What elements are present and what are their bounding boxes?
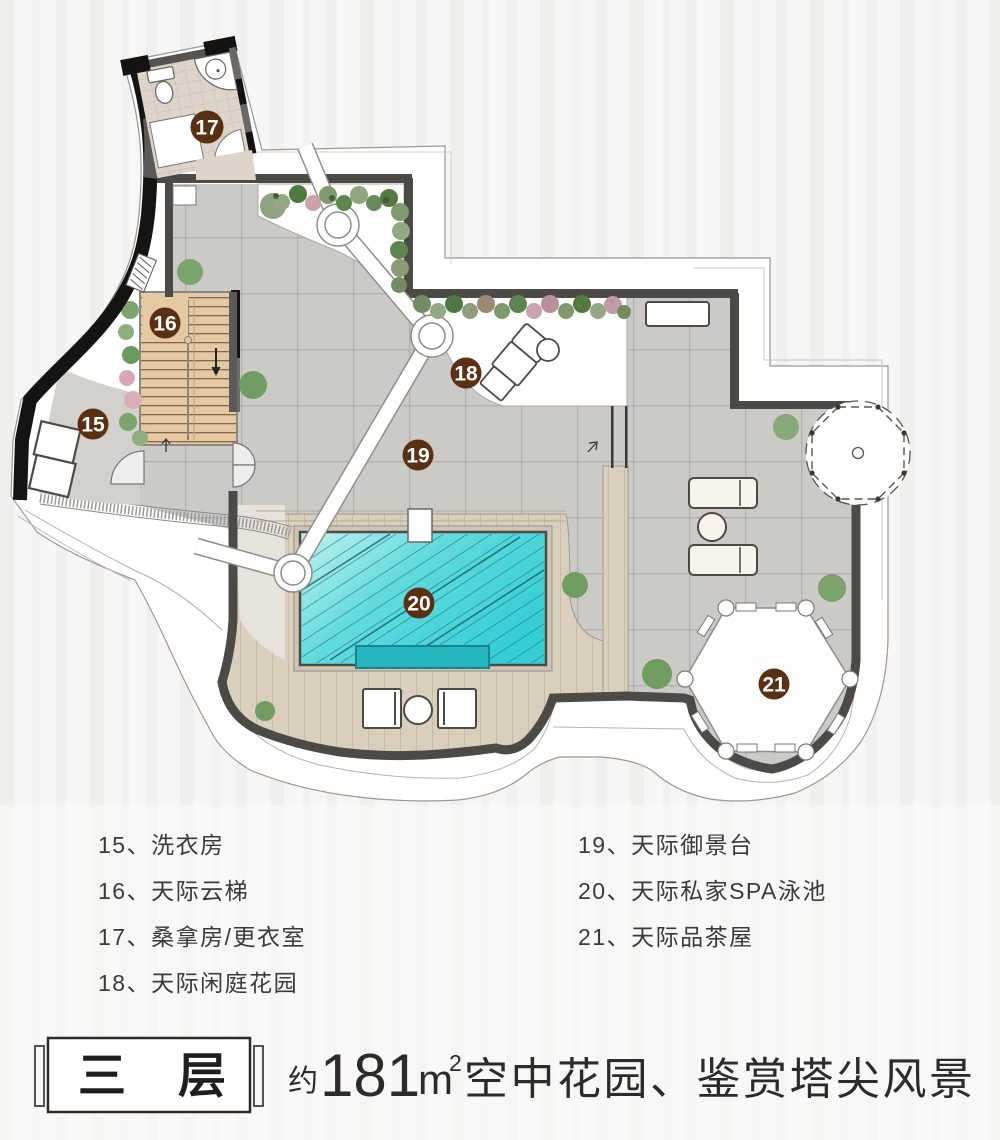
svg-text:19、天际御景台: 19、天际御景台 [578, 832, 754, 858]
svg-text:21: 21 [762, 674, 786, 697]
svg-text:20、天际私家SPA泳池: 20、天际私家SPA泳池 [578, 878, 827, 904]
svg-text:16: 16 [153, 313, 176, 336]
svg-text:m: m [418, 1056, 453, 1103]
svg-text:约: 约 [288, 1065, 318, 1098]
svg-text:15: 15 [81, 414, 105, 437]
svg-text:三: 三 [78, 1050, 126, 1103]
svg-text:17: 17 [195, 117, 218, 140]
svg-text:18: 18 [454, 363, 478, 386]
svg-text:16、天际云梯: 16、天际云梯 [98, 878, 249, 904]
svg-text:18、天际闲庭花园: 18、天际闲庭花园 [98, 970, 298, 996]
svg-text:181: 181 [320, 1042, 420, 1109]
svg-text:20: 20 [407, 593, 430, 616]
svg-text:空中花园、鉴赏塔尖风景: 空中花园、鉴赏塔尖风景 [464, 1055, 976, 1104]
svg-text:19: 19 [406, 445, 429, 468]
svg-text:15、洗衣房: 15、洗衣房 [98, 832, 225, 858]
svg-text:层: 层 [178, 1050, 226, 1103]
svg-text:17、桑拿房/更衣室: 17、桑拿房/更衣室 [98, 924, 306, 950]
svg-text:21、天际品茶屋: 21、天际品茶屋 [578, 924, 754, 950]
svg-text:2: 2 [449, 1050, 462, 1076]
